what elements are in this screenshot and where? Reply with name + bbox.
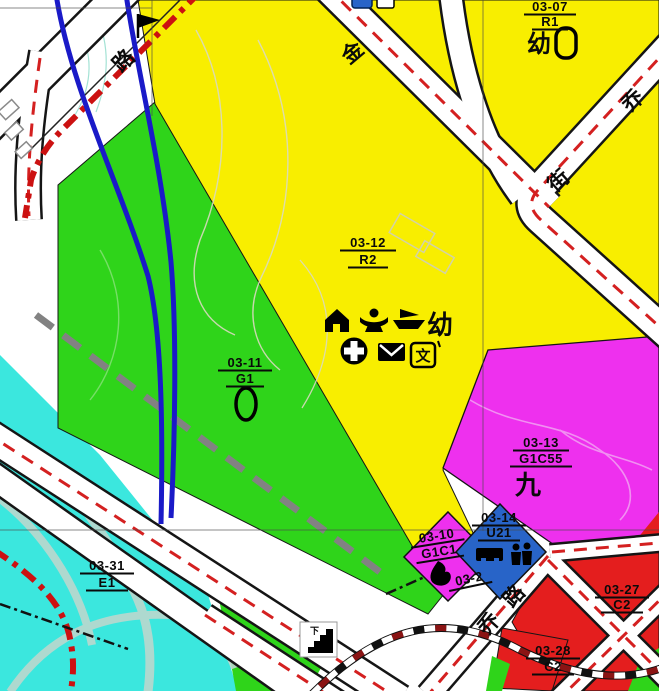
- svg-text:R1: R1: [541, 14, 559, 29]
- cut-symbol-box-icon: [377, 0, 394, 8]
- kindergarten-char: 幼: [427, 310, 453, 340]
- underpass-char: 下: [310, 626, 319, 636]
- svg-text:U21: U21: [486, 525, 511, 540]
- parcel-marker-03-07: 幼: [527, 30, 551, 58]
- cut-symbol-blue-icon: [352, 0, 372, 8]
- svg-text:03-31: 03-31: [89, 558, 125, 573]
- svg-text:G1: G1: [236, 371, 254, 386]
- zoning-map-canvas[interactable]: 幼 文: [0, 0, 659, 691]
- svg-text:E1: E1: [99, 575, 116, 590]
- svg-text:03-13: 03-13: [523, 435, 559, 450]
- culture-char: 文: [415, 347, 431, 365]
- svg-text:C2: C2: [544, 659, 562, 674]
- bus-icon: [476, 548, 503, 562]
- medical-cross-icon: [341, 338, 368, 365]
- parcel-marker-03-13: 九: [514, 470, 541, 500]
- svg-text:03-28: 03-28: [535, 643, 571, 658]
- svg-text:R2: R2: [359, 252, 377, 267]
- svg-text:03-11: 03-11: [227, 355, 262, 370]
- underpass-stairs-icon: 下: [300, 622, 337, 657]
- svg-text:G1C55: G1C55: [519, 451, 563, 466]
- post-envelope-icon: [378, 343, 405, 361]
- svg-text:03-27: 03-27: [604, 582, 640, 597]
- svg-text:C2: C2: [613, 597, 631, 612]
- svg-text:03-07: 03-07: [532, 0, 568, 14]
- svg-text:03-14: 03-14: [481, 510, 517, 525]
- svg-text:03-12: 03-12: [350, 235, 386, 250]
